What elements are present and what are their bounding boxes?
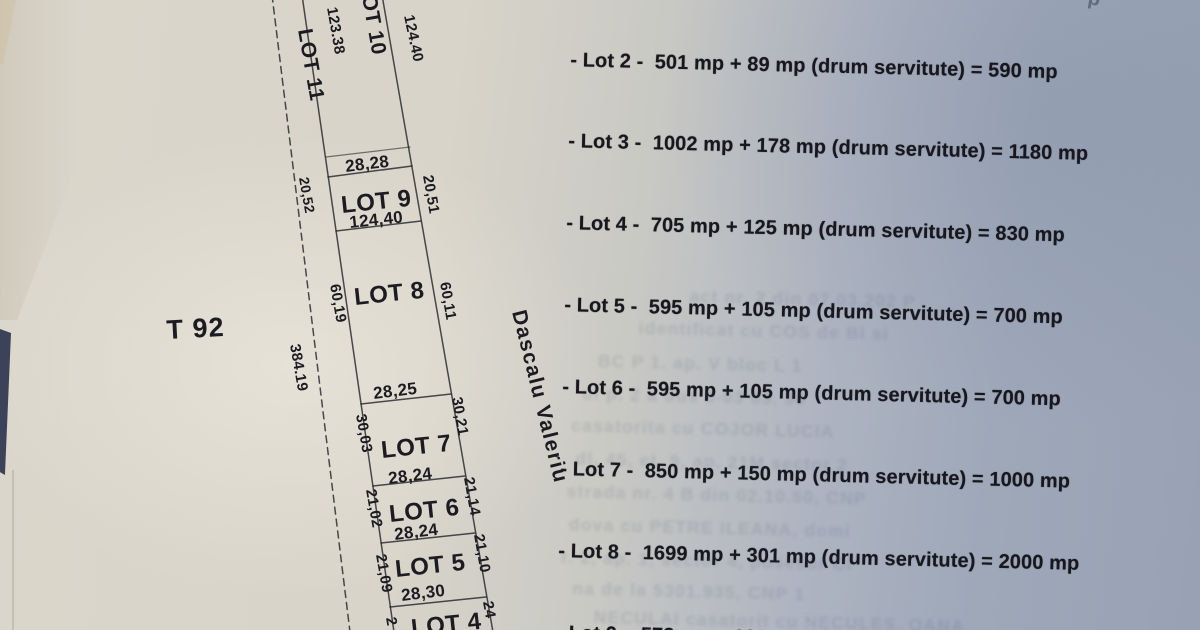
ghost-text-line: dl. 45, et. 9, ap. 21M sector 2 — [575, 448, 848, 476]
territory-label: T 92 — [166, 312, 226, 345]
lot8-right-dim-label: 60,11 — [436, 281, 459, 322]
list-item: - Lot 4 - 705 mp + 125 mp (drum servitut… — [556, 210, 1196, 253]
ghost-text-line: strada nr. 4 B din 02.10.50, CNP — [566, 481, 866, 509]
ghost-text-line: casatorita cu COJOR LUCIA — [571, 415, 835, 442]
road-name-label: LOT 11 — [293, 27, 328, 103]
lot7-name-label: LOT 7 — [380, 430, 453, 464]
lot6-right-dim-label: 21,14 — [460, 476, 484, 518]
ghost-text-line: BC P 1. ap. V bloc L 1 — [598, 351, 803, 377]
lot7-bottom-dim-label: 28,24 — [387, 464, 433, 488]
ghost-text-line: ul p. 2 a dus 8-03 03. 30 — [582, 384, 807, 410]
lot9-left-dim-label: 20,52 — [296, 176, 318, 215]
list-item: - Lot 3 - 1002 mp + 178 mp (drum servitu… — [558, 128, 1198, 171]
lot7-right-dim-label: 30,21 — [448, 396, 472, 437]
lot7-left-dim-label: 30,03 — [352, 413, 376, 454]
lot10-name-label: OT 10 — [357, 0, 390, 57]
list-item: - Lot 2 - 501 mp + 89 mp (drum servitute… — [560, 47, 1200, 90]
lot5-left-dim-label: 21,09 — [372, 553, 396, 594]
lot8-left-dim-label: 60,19 — [326, 283, 350, 324]
ghost-text-line: identificat cu COS de Bl si — [638, 318, 889, 345]
lot6-left-dim-label: 21,02 — [362, 488, 386, 529]
lot4-right-dim-partial: 24 — [479, 600, 499, 620]
lot4-left-dim-partial: 2 — [382, 616, 400, 627]
photographed-document: T 92 Dascalu Valeriu 384.19 LOT 11 123.3… — [0, 0, 1200, 630]
lot5-name-label: LOT 5 — [394, 549, 467, 583]
lot10-right-length-label: 124.40 — [400, 13, 427, 63]
lot8-name-label: LOT 8 — [353, 277, 426, 311]
bleed-through-text: act nr. 2 din 07.03.202 P identificat cu… — [555, 276, 1181, 564]
lot10-left-length-label: 123.38 — [323, 6, 348, 56]
ghost-text-line: act nr. 2 din 07.03.202 P — [689, 286, 916, 313]
lot5-right-dim-label: 21,10 — [470, 533, 494, 574]
lot6-bottom-dim-label: 28,24 — [393, 520, 439, 544]
ghost-text-line: dova cu PETRE ILEANA, domi — [569, 514, 851, 542]
road-total-length-label: 384.19 — [286, 343, 311, 393]
lot9-top-dim-label: 28,28 — [344, 152, 390, 176]
lot8-bottom-dim-label: 28,25 — [372, 379, 418, 403]
lot9-right-dim-label: 20,51 — [419, 174, 443, 215]
lot4-name-label-partial: LOT 4 — [410, 608, 483, 630]
